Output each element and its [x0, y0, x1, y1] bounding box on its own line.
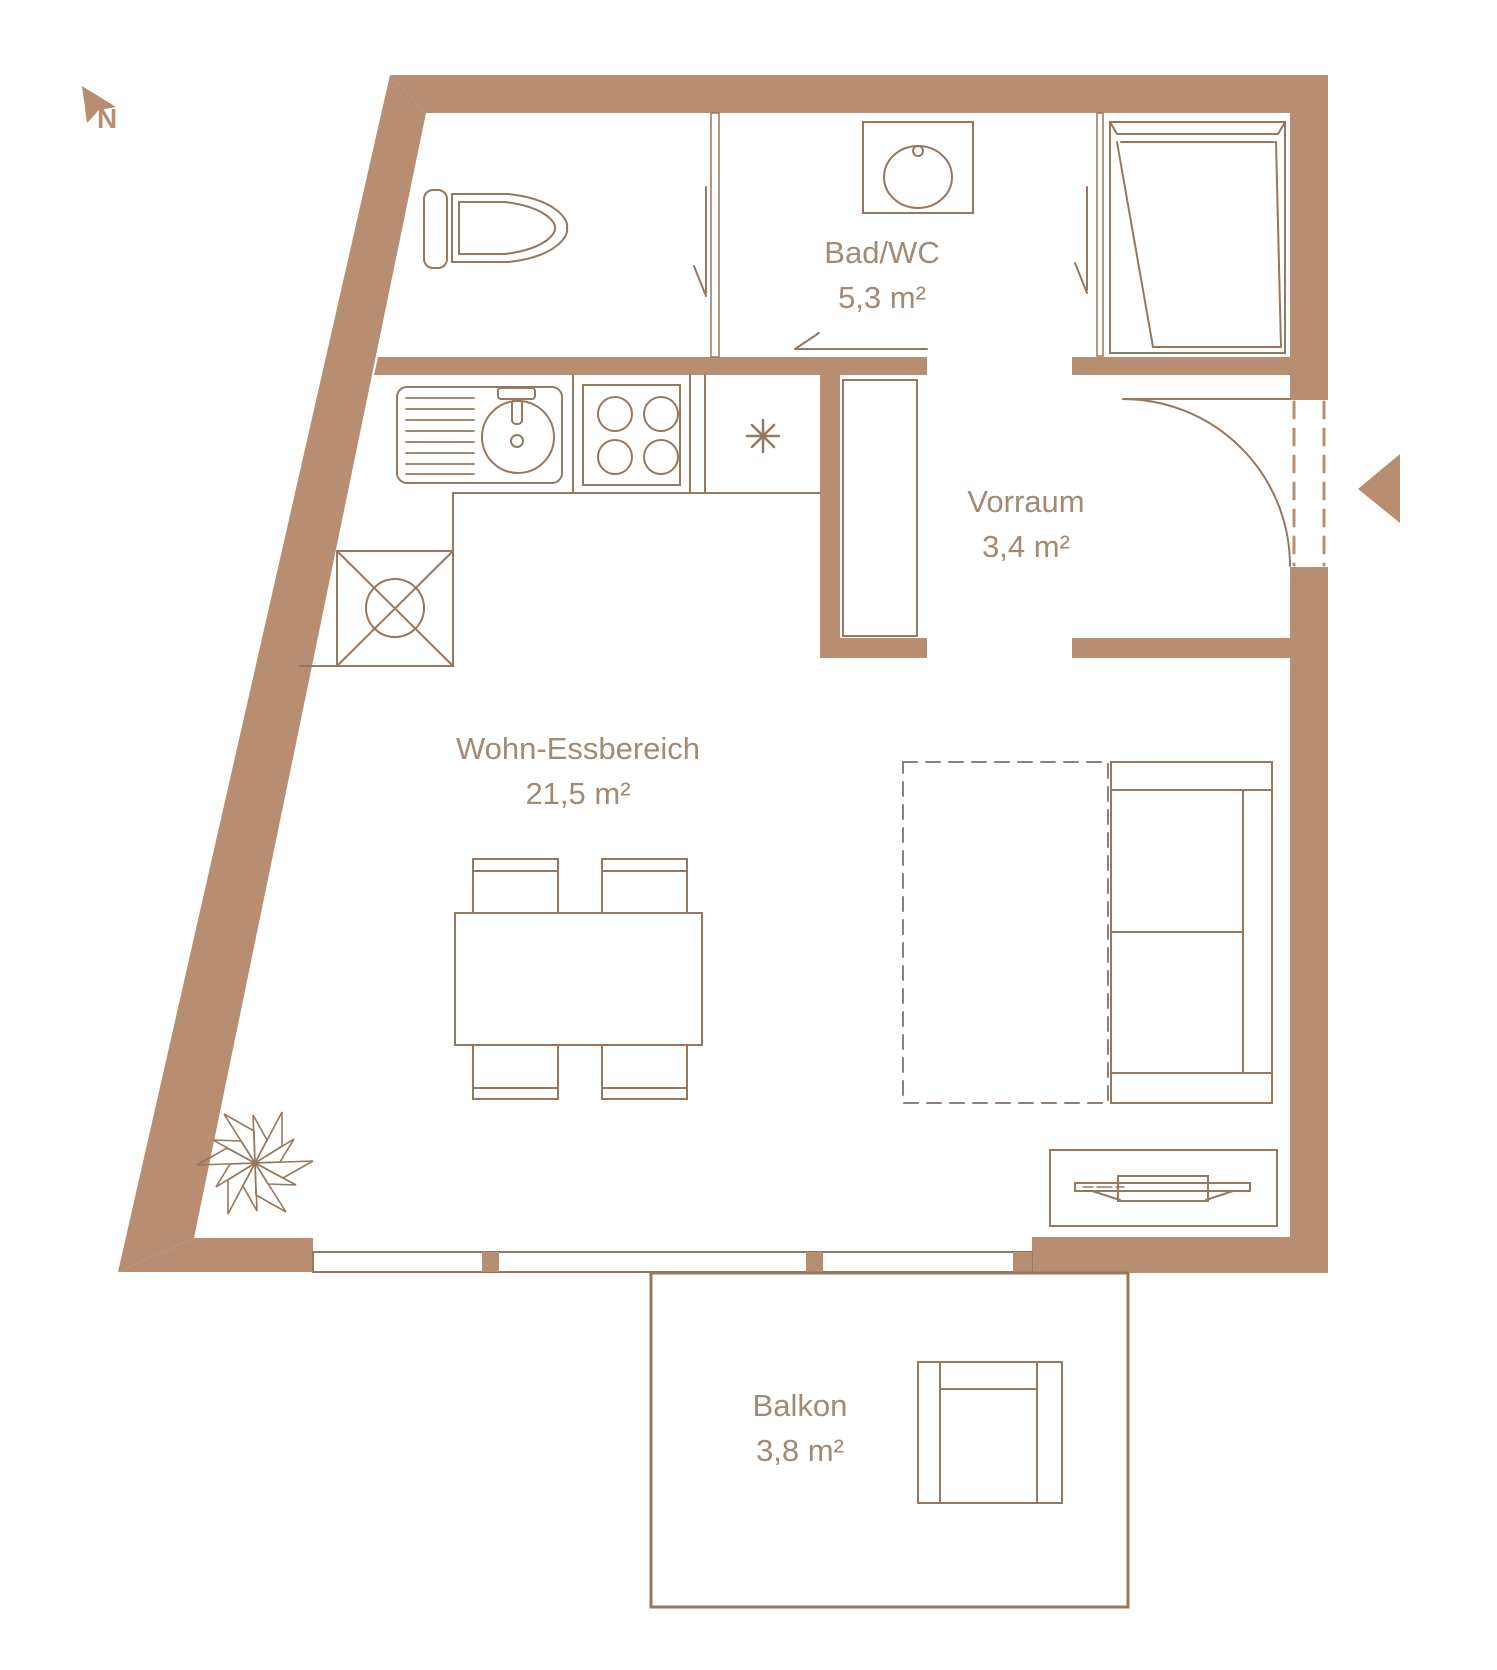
- window-mullion: [1013, 1252, 1032, 1272]
- room-label-bad-wc: Bad/WC 5,3 m²: [824, 230, 939, 320]
- wardrobe: [843, 380, 917, 636]
- wall-bath-south-left: [374, 357, 927, 375]
- room-area: 3,8 m²: [753, 1428, 848, 1473]
- partition-shower: [1097, 113, 1103, 356]
- wall-bath-south-right: [1072, 357, 1290, 375]
- entrance-door: [1123, 399, 1400, 566]
- chair: [473, 859, 558, 913]
- window-mullion: [482, 1252, 499, 1272]
- toilet-cistern: [424, 190, 447, 268]
- room-name: Wohn-Essbereich: [456, 726, 700, 771]
- shower-icon: [1110, 122, 1285, 353]
- partition-wc-bad: [711, 113, 719, 357]
- shower-door-arrow-icon: [1075, 187, 1087, 293]
- wall-right-upper: [1290, 113, 1328, 400]
- balcony-outline: [651, 1273, 1128, 1607]
- floor-plan: N Bad/WC 5,3 m² Vorraum 3,4 m² Wohn-Essb…: [0, 0, 1497, 1670]
- bad-door-arrow-icon: [795, 333, 927, 349]
- room-area: 5,3 m²: [824, 275, 939, 320]
- wall-right-lower: [1290, 567, 1328, 1273]
- sink-basin: [482, 401, 554, 473]
- room-label-wohn-essbereich: Wohn-Essbereich 21,5 m²: [456, 726, 700, 816]
- sideboard-tv: [1050, 1150, 1277, 1226]
- north-label: N: [97, 103, 117, 135]
- room-label-vorraum: Vorraum 3,4 m²: [967, 479, 1084, 569]
- sofa: [1111, 762, 1272, 1103]
- floor-plan-drawing: [0, 0, 1497, 1670]
- dining-chairs: [473, 859, 687, 1099]
- room-name: Bad/WC: [824, 230, 939, 275]
- wall-vorraum-west: [820, 375, 840, 658]
- stove-icon: [583, 385, 680, 485]
- faucet-stem: [512, 399, 522, 424]
- entrance-arrow-icon: [1358, 454, 1400, 523]
- bed-dashed-outline: [903, 762, 1108, 1103]
- toilet-bowl-inner: [459, 202, 555, 254]
- kitchen-sink-icon: [397, 387, 562, 483]
- balcony: [651, 1273, 1128, 1607]
- door-swing-arc: [1123, 399, 1290, 566]
- room-label-balkon: Balkon 3,8 m²: [753, 1383, 848, 1473]
- room-area: 3,4 m²: [967, 524, 1084, 569]
- balcony-chair: [918, 1362, 1062, 1503]
- wall-left-slanted: [118, 75, 426, 1272]
- room-name: Vorraum: [967, 479, 1084, 524]
- wall-vorraum-west-stub: [820, 638, 927, 658]
- wall-top: [390, 75, 1328, 113]
- window-mullion: [806, 1252, 823, 1272]
- wall-bottom-right: [1032, 1237, 1328, 1273]
- appliance-asterisk-icon: [747, 420, 779, 452]
- tv-stand: [1118, 1176, 1208, 1201]
- faucet: [498, 388, 535, 399]
- window-band: [313, 1252, 1032, 1272]
- room-area: 21,5 m²: [456, 771, 700, 816]
- bathroom-sink-icon: [863, 122, 973, 213]
- toilet-bowl-outer: [452, 194, 567, 262]
- wall-vorraum-south: [1072, 638, 1290, 658]
- exterior-walls: [118, 75, 1328, 1273]
- chair: [602, 859, 687, 913]
- chair: [602, 1045, 687, 1099]
- sink-drain: [511, 435, 523, 447]
- toilet-icon: [424, 190, 567, 268]
- room-name: Balkon: [753, 1383, 848, 1428]
- dining-table: [455, 913, 702, 1045]
- wc-door-arrow-icon: [694, 187, 706, 296]
- windows: [313, 1252, 1032, 1272]
- chair: [473, 1045, 558, 1099]
